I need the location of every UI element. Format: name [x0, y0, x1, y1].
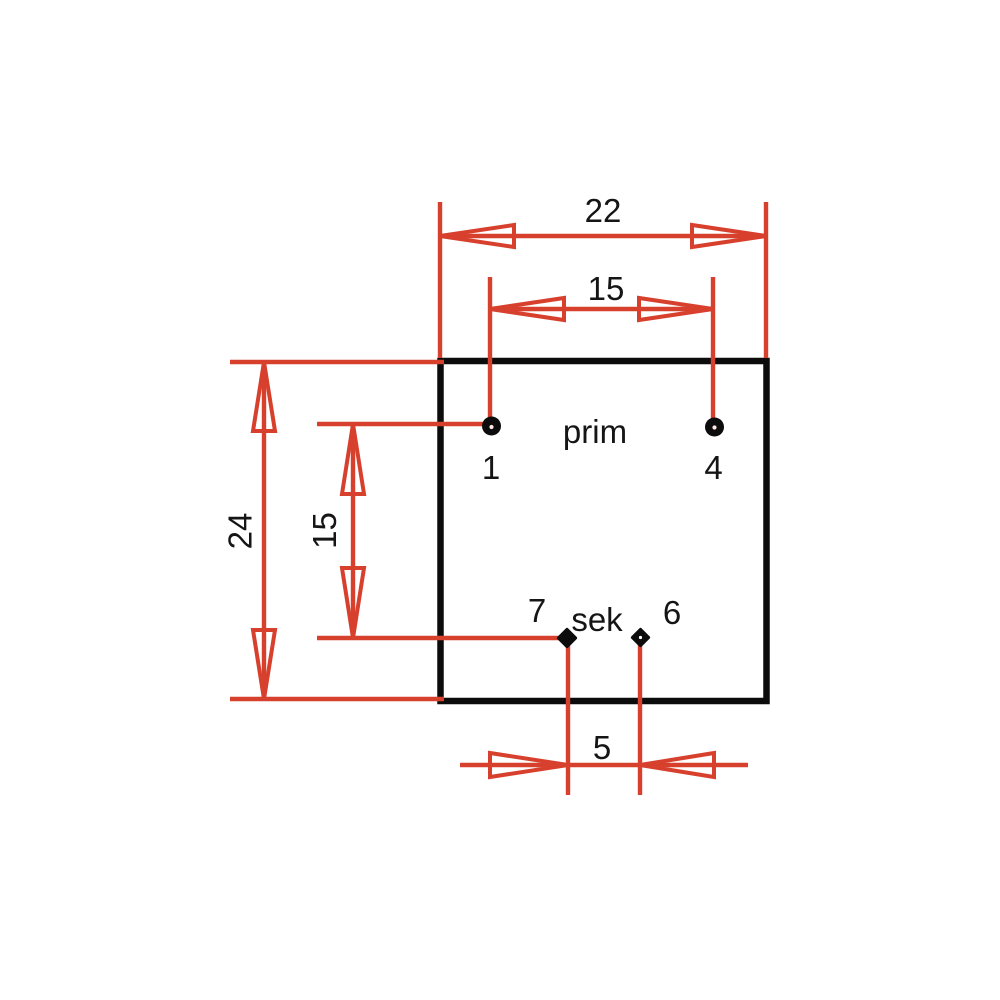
svg-text:5: 5	[593, 729, 611, 766]
svg-text:7: 7	[528, 592, 546, 629]
svg-text:sek: sek	[571, 601, 623, 638]
svg-text:4: 4	[704, 449, 722, 486]
svg-text:6: 6	[663, 594, 681, 631]
svg-text:22: 22	[585, 192, 622, 229]
svg-text:15: 15	[306, 512, 343, 549]
svg-text:15: 15	[588, 270, 625, 307]
svg-text:prim: prim	[563, 413, 627, 450]
svg-text:24: 24	[222, 513, 259, 550]
svg-text:1: 1	[482, 449, 500, 486]
